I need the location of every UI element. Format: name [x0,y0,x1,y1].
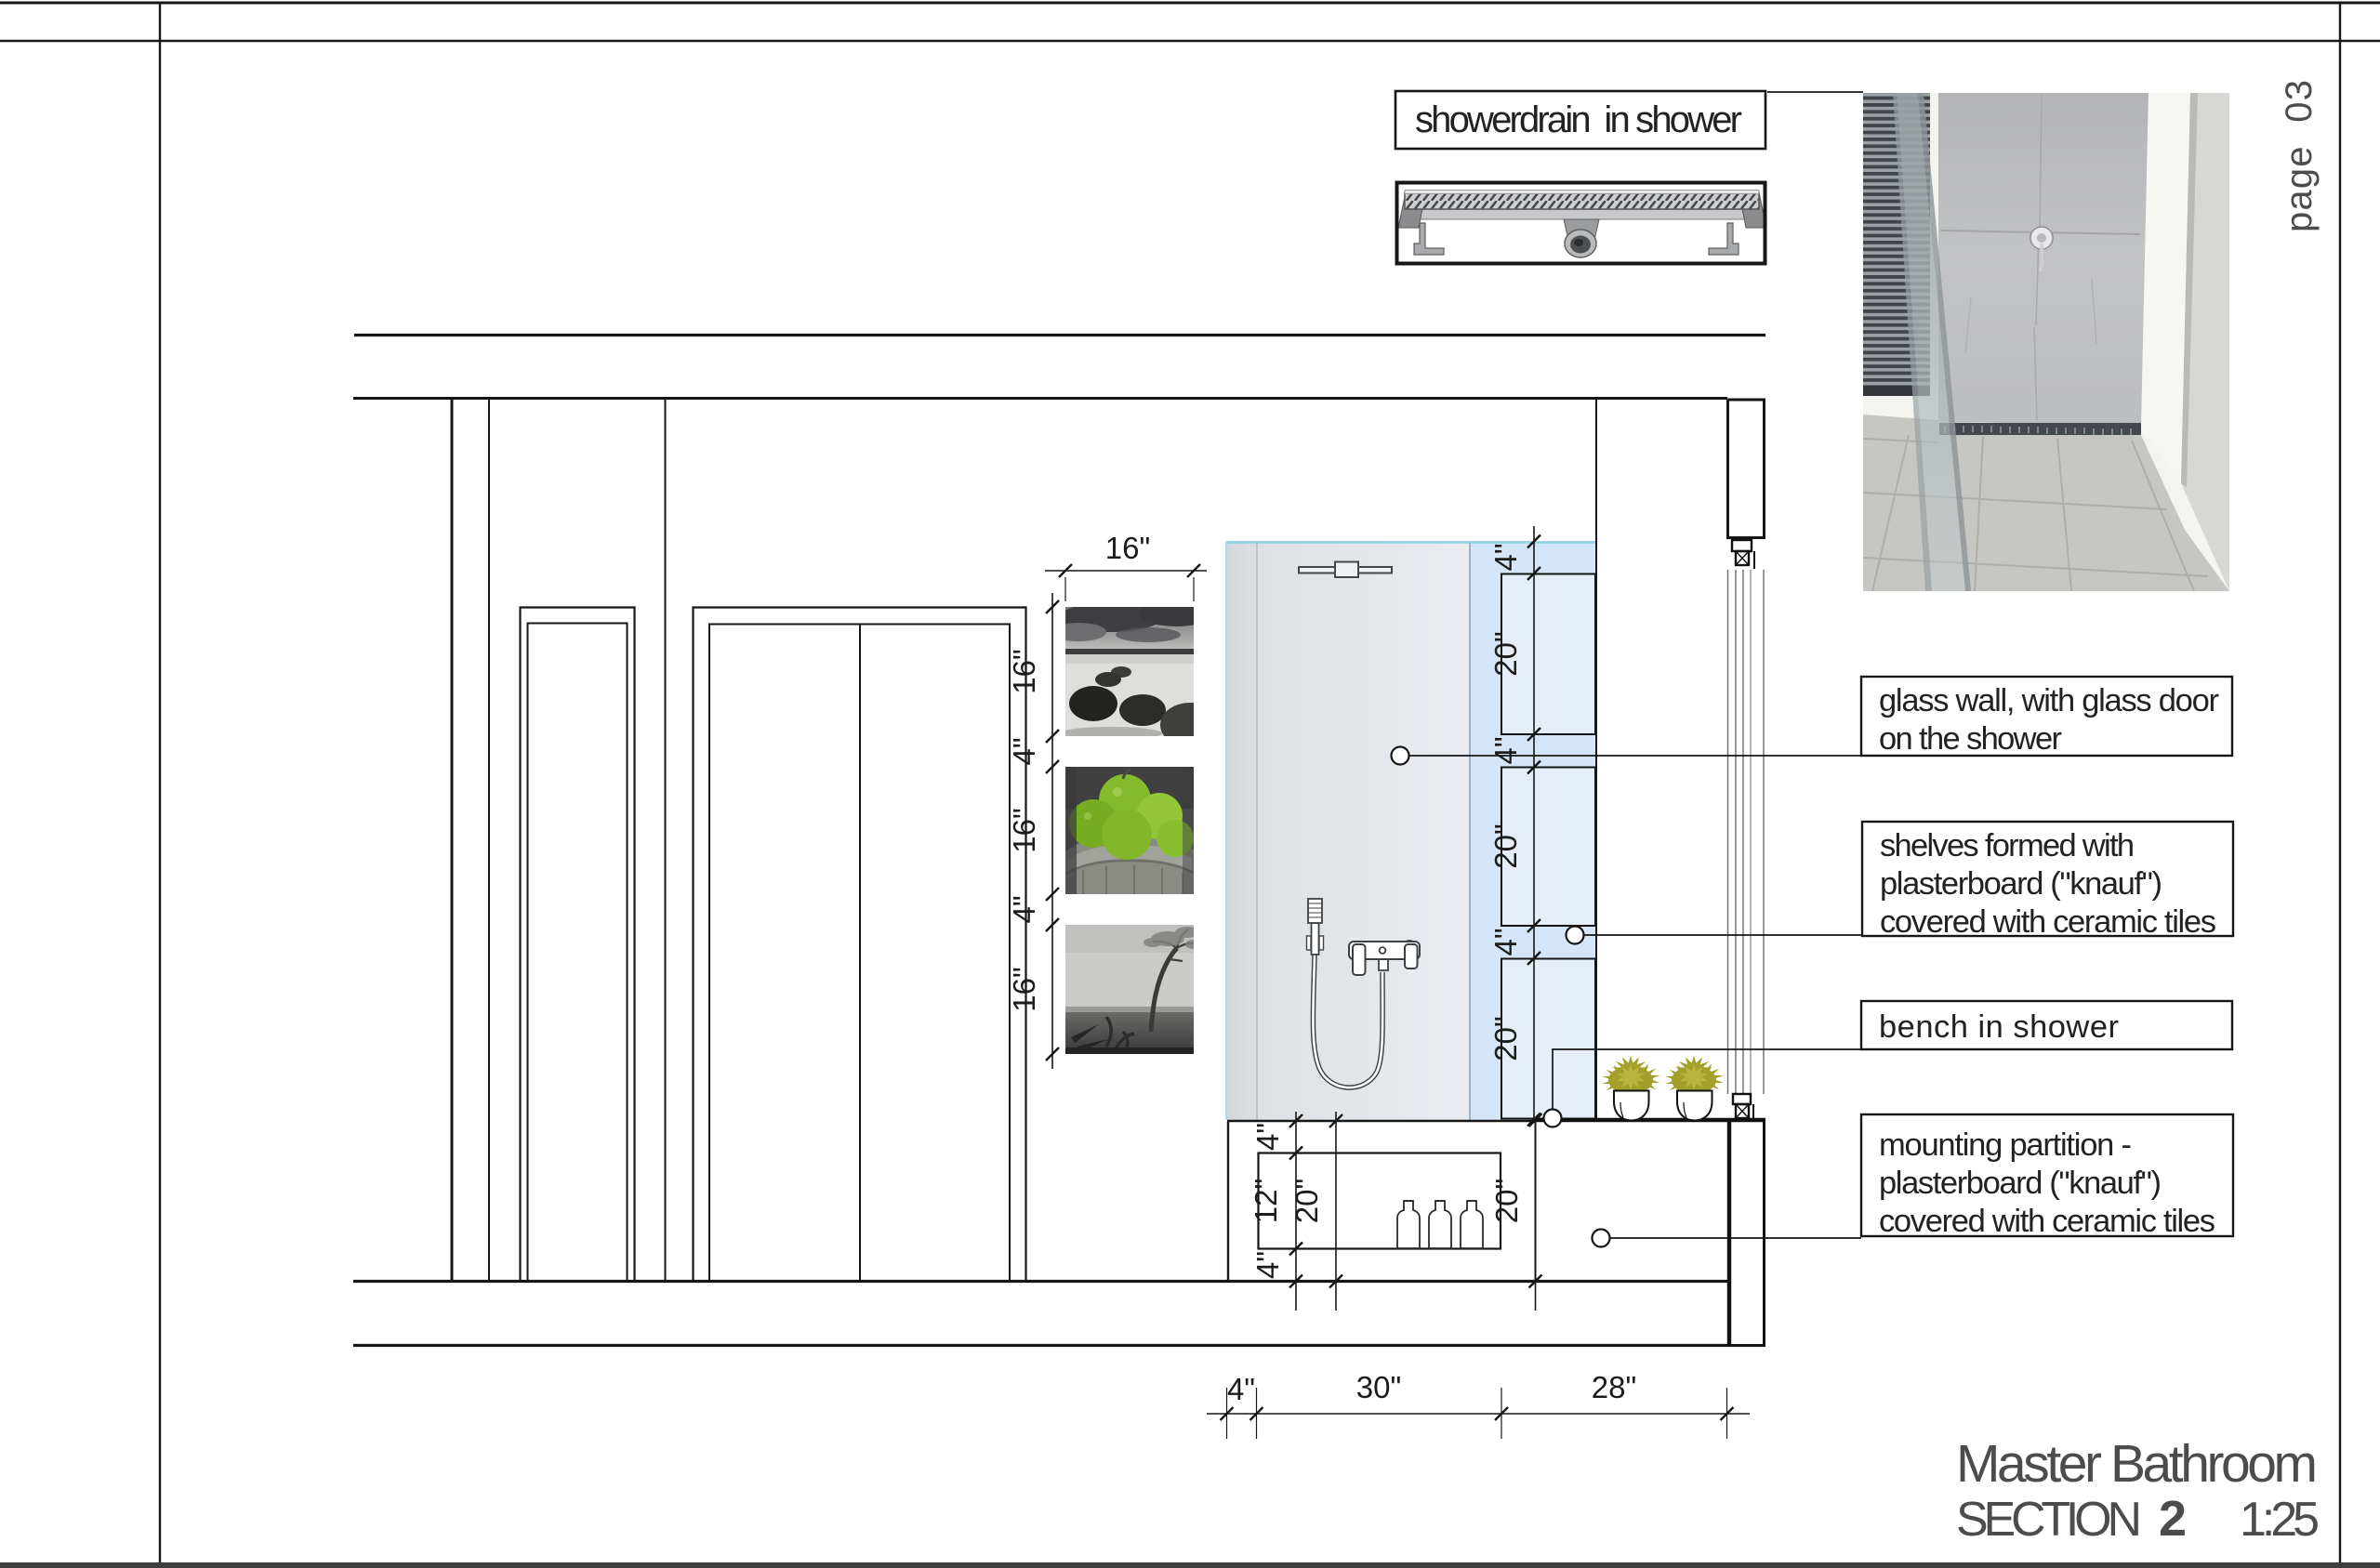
svg-text:on the shower: on the shower [1879,721,2062,757]
svg-text:20": 20" [1488,631,1523,676]
svg-text:4": 4" [1227,1372,1255,1406]
svg-text:20": 20" [1489,1179,1524,1223]
svg-text:16": 16" [1007,649,1041,693]
svg-text:glass wall, with glass door: glass wall, with glass door [1879,683,2219,718]
svg-text:4": 4" [1488,736,1523,764]
svg-text:plasterboard ("knauf"): plasterboard ("knauf") [1880,866,2162,902]
svg-text:SECTION: SECTION [1956,1493,2142,1547]
svg-text:30": 30" [1356,1370,1401,1404]
svg-text:1:25: 1:25 [2240,1493,2320,1547]
svg-text:mounting partition -: mounting partition - [1879,1127,2132,1163]
svg-text:20": 20" [1488,1016,1523,1061]
svg-text:20": 20" [1289,1179,1324,1223]
svg-text:bench in shower: bench in shower [1879,1009,2119,1045]
svg-text:16": 16" [1007,808,1041,852]
svg-text:page 03: page 03 [2279,80,2320,232]
svg-text:28": 28" [1592,1370,1636,1404]
svg-text:20": 20" [1488,824,1523,868]
svg-text:4": 4" [1250,1251,1285,1279]
svg-text:2: 2 [2159,1491,2187,1547]
svg-text:4": 4" [1007,895,1041,923]
svg-text:showerdrain in shower: showerdrain in shower [1415,99,1742,140]
svg-text:4": 4" [1488,928,1523,955]
svg-text:4": 4" [1488,543,1523,571]
svg-text:4": 4" [1007,737,1041,765]
svg-text:shelves formed with: shelves formed with [1880,828,2135,863]
svg-text:16": 16" [1105,531,1150,565]
svg-text:covered with ceramic tiles: covered with ceramic tiles [1880,904,2216,940]
svg-text:16": 16" [1007,967,1041,1011]
svg-text:4": 4" [1250,1123,1285,1151]
svg-text:Master Bathroom: Master Bathroom [1956,1434,2318,1494]
svg-text:12": 12" [1249,1179,1283,1223]
svg-text:covered with ceramic tiles: covered with ceramic tiles [1879,1204,2215,1239]
svg-text:plasterboard ("knauf"): plasterboard ("knauf") [1879,1166,2162,1201]
